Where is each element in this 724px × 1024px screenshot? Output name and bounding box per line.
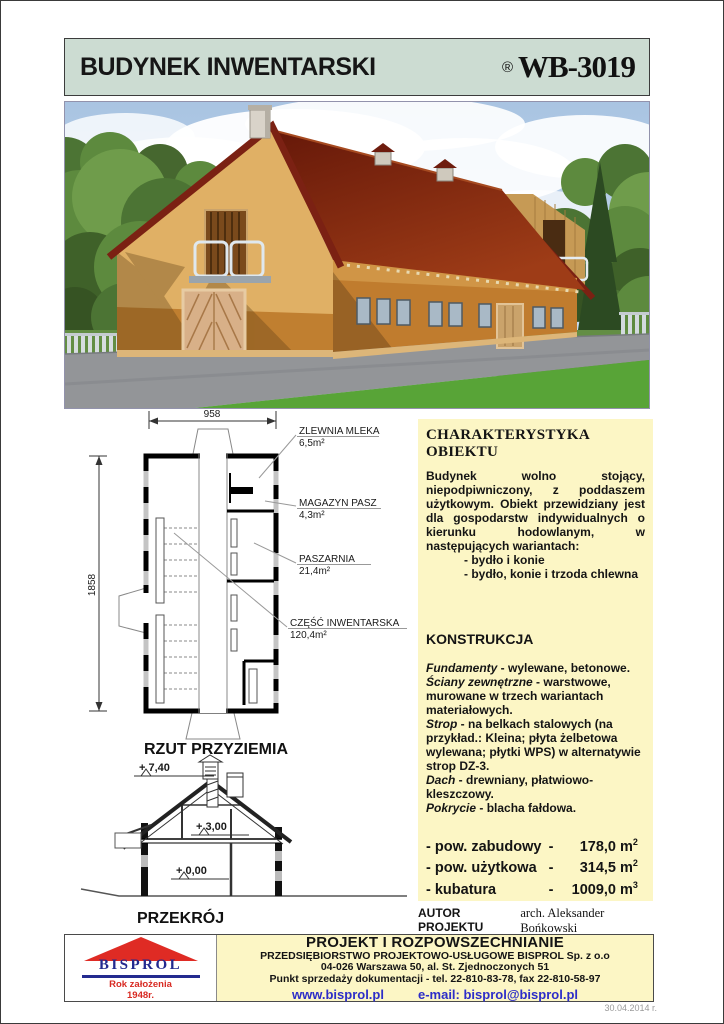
room-area: 6,5m² <box>299 438 325 449</box>
stat-row: - pow. zabudowy - 178,0 m2 <box>426 834 645 855</box>
room-label: CZĘŚĆ INWENTARSKA <box>290 616 400 629</box>
project-sheet: BUDYNEK INWENTARSKI ® WB-3019 <box>0 0 724 1024</box>
level-ground: + 0,00 <box>176 865 207 877</box>
cross-section-drawing: + 7,40 + 3,00 + 0,00 PRZEKRÓJ <box>79 753 409 927</box>
stat-value: 314,5 <box>558 860 616 877</box>
model-code-group: ® WB-3019 <box>502 49 635 85</box>
main-door <box>183 290 245 352</box>
level-ridge: + 7,40 <box>139 762 170 774</box>
construction-desc: - na belkach stalowych (na przykład.: Kl… <box>426 717 641 773</box>
construction-item: Ściany zewnętrzne - warstwowe, murowane … <box>426 675 645 717</box>
construction-term: Pokrycie <box>426 801 476 815</box>
plan-dim-width: 958 <box>204 409 221 420</box>
stat-value: 1009,0 <box>558 882 616 899</box>
construction-item: Strop - na belkach stalowych (na przykła… <box>426 717 645 773</box>
registered-trademark-icon: ® <box>502 59 513 76</box>
footer-info: PROJEKT I ROZPOWSZECHNIANIE PRZEDSIĘBIOR… <box>217 935 653 1001</box>
logo-bar <box>82 975 200 978</box>
room-label: PASZARNIA <box>299 554 355 565</box>
characteristics-body: Budynek wolno stojący, niepodpiwniczony,… <box>426 469 645 553</box>
stat-row: - kubatura - 1009,0 m3 <box>426 877 645 898</box>
stat-dash: - <box>544 839 558 856</box>
stat-dash: - <box>544 882 558 899</box>
footer-links: www.bisprol.pl e-mail: bisprol@bisprol.p… <box>292 987 578 1002</box>
construction-desc: - wylewane, betonowe. <box>497 661 630 675</box>
section-caption: PRZEKRÓJ <box>137 908 224 927</box>
construction-term: Strop <box>426 717 457 731</box>
stat-unit: m2 <box>616 834 638 855</box>
construction-term: Dach <box>426 773 455 787</box>
construction-desc: - blacha fałdowa. <box>476 801 576 815</box>
bisprol-logo: BISPROL Rok założenia 1948r. <box>65 935 217 1001</box>
construction-item: Dach - drewniany, płatwiowo-kleszczowy. <box>426 773 645 801</box>
stat-label: - pow. zabudowy <box>426 839 544 856</box>
variant-item: - bydło, konie i trzoda chlewna <box>426 567 645 581</box>
floor-plan-drawing: 958 1858 <box>59 403 421 757</box>
footer-website: www.bisprol.pl <box>292 987 384 1002</box>
ground-line <box>81 889 407 896</box>
stat-value: 178,0 <box>558 839 616 856</box>
author-row: AUTOR PROJEKTU arch. Aleksander Bońkowsk… <box>418 906 653 936</box>
cross-section: + 7,40 + 3,00 + 0,00 PRZEKRÓJ <box>79 753 409 927</box>
date-stamp: 30.04.2014 r. <box>604 1003 657 1013</box>
stat-label: - kubatura <box>426 882 544 899</box>
model-code: WB-3019 <box>518 49 635 85</box>
author-name: arch. Aleksander Bońkowski <box>520 906 653 936</box>
construction-item: Pokrycie - blacha fałdowa. <box>426 801 645 815</box>
logo-name: BISPROL <box>99 957 182 974</box>
characteristics-panel: CHARAKTERYSTYKA OBIEKTU Budynek wolno st… <box>418 419 653 901</box>
chimney <box>248 105 272 138</box>
stat-dash: - <box>544 860 558 877</box>
level-attic: + 3,00 <box>196 821 227 833</box>
balcony-slab <box>189 276 271 283</box>
construction-item: Fundamenty - wylewane, betonowe. <box>426 661 645 675</box>
stat-row: - pow. użytkowa - 314,5 m2 <box>426 855 645 876</box>
plan-dim-height: 1858 <box>87 573 98 596</box>
variant-item: - bydło i konie <box>426 553 645 567</box>
stat-unit: m3 <box>616 877 638 898</box>
room-area: 21,4m² <box>299 566 331 577</box>
construction-heading: KONSTRUKCJA <box>426 631 645 647</box>
footer-email: e-mail: bisprol@bisprol.pl <box>418 987 578 1002</box>
building-rendering <box>64 101 650 409</box>
author-label: AUTOR PROJEKTU <box>418 906 520 934</box>
footer-box: BISPROL Rok założenia 1948r. PROJEKT I R… <box>64 934 654 1002</box>
header-bar: BUDYNEK INWENTARSKI ® WB-3019 <box>64 38 650 96</box>
room-area: 4,3m² <box>299 510 325 521</box>
page-title: BUDYNEK INWENTARSKI <box>80 53 376 82</box>
footer-title: PROJEKT I ROZPOWSZECHNIANIE <box>306 934 564 951</box>
room-area: 120,4m² <box>290 630 327 641</box>
construction-term: Ściany zewnętrzne <box>426 675 533 689</box>
stat-label: - pow. użytkowa <box>426 860 544 877</box>
building-rendering-image <box>65 102 649 408</box>
footer-phone: Punkt sprzedaży dokumentacji - tel. 22-8… <box>270 974 601 986</box>
room-label: ZLEWNIA MLEKA <box>299 426 380 437</box>
room-label: MAGAZYN PASZ <box>299 498 377 509</box>
stats-block: - pow. zabudowy - 178,0 m2 - pow. użytko… <box>426 834 645 898</box>
characteristics-heading: CHARAKTERYSTYKA OBIEKTU <box>426 427 645 461</box>
construction-term: Fundamenty <box>426 661 497 675</box>
stat-unit: m2 <box>616 855 638 876</box>
floor-plan: 958 1858 <box>59 403 421 757</box>
logo-subtitle: Rok założenia 1948r. <box>109 980 172 1001</box>
